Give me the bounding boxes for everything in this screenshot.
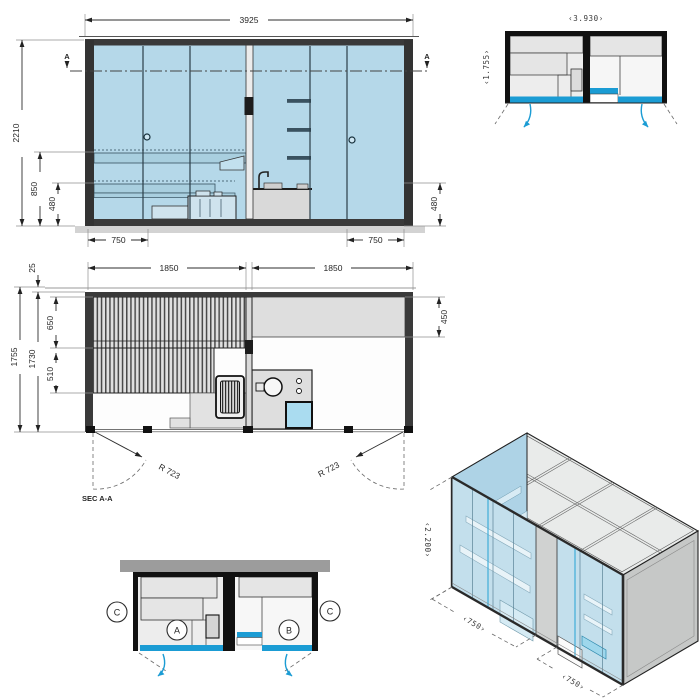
control-knob	[297, 379, 302, 384]
small-plan-depth-label: ‹1.755›	[482, 49, 491, 85]
drawing-svg: A A 3925 2210 850	[0, 0, 700, 700]
room-marker-b: B	[279, 620, 299, 640]
room-marker-a: A	[167, 620, 187, 640]
svg-text:450: 450	[439, 310, 449, 324]
svg-text:510: 510	[45, 367, 55, 381]
iso-partition	[536, 525, 557, 647]
door-handle-icon	[349, 137, 355, 143]
section-marker-c-right: C	[320, 601, 340, 621]
door-lock-block	[245, 97, 254, 115]
control-knob	[297, 389, 302, 394]
glass-front-right	[618, 97, 662, 103]
svg-text:2210: 2210	[11, 123, 21, 142]
dimension-depth-1755: 1755	[9, 287, 85, 432]
section-door-swing-a	[139, 653, 166, 676]
svg-text:1850: 1850	[160, 263, 179, 273]
dimension-bay-right-1850: 1850	[252, 262, 413, 290]
svg-text:750: 750	[111, 235, 125, 245]
section-door-swing-b	[285, 653, 311, 676]
door-swing-right	[641, 104, 677, 127]
svg-text:1850: 1850	[324, 263, 343, 273]
door-swing-left	[495, 104, 531, 127]
svg-text:1730: 1730	[27, 349, 37, 368]
shower-step	[590, 88, 618, 94]
svg-text:‹750›: ‹750›	[560, 672, 587, 693]
svg-text:25: 25	[27, 263, 37, 273]
svg-text:‹2.200›: ‹2.200›	[423, 522, 432, 558]
bench-step	[152, 206, 188, 219]
section-marker-left: A	[64, 52, 70, 68]
svg-text:750: 750	[368, 235, 382, 245]
plan-partition	[245, 297, 253, 429]
section-plan-view: A B C C	[107, 560, 340, 676]
dimension-overhang-25: 25	[27, 263, 38, 287]
sink-basin	[264, 378, 282, 396]
svg-text:B: B	[286, 626, 292, 636]
dimension-bench-850: 850	[29, 152, 94, 226]
dimension-width-3925: 3925	[85, 14, 413, 36]
svg-text:A: A	[174, 626, 180, 636]
glass-front-b	[262, 645, 312, 651]
section-marker-right: A	[424, 52, 430, 68]
svg-text:C: C	[114, 608, 121, 618]
dimension-bay-left-1850: 1850	[88, 262, 246, 290]
svg-text:‹750›: ‹750›	[461, 614, 488, 635]
rear-wall-band	[120, 560, 330, 572]
floor-strip	[75, 226, 425, 233]
svg-text:480: 480	[47, 197, 57, 211]
svg-text:3925: 3925	[240, 15, 259, 25]
front-elevation-view: A A 3925 2210 850	[11, 14, 446, 247]
glass-front-left	[510, 97, 583, 103]
door-handle-icon	[144, 134, 150, 140]
glass-front-a	[140, 645, 223, 651]
svg-text:R 723: R 723	[316, 459, 341, 479]
section-label: SEC A-A	[82, 494, 113, 503]
technical-drawing-sheet: A A 3925 2210 850	[0, 0, 700, 700]
shower-step-b	[237, 632, 262, 638]
svg-text:850: 850	[29, 182, 39, 196]
sauna-heater-plan	[216, 376, 244, 418]
faucet-plan	[256, 383, 264, 391]
svg-text:480: 480	[429, 197, 439, 211]
svg-text:R 723: R 723	[157, 462, 182, 482]
svg-text:1755: 1755	[9, 347, 19, 366]
isometric-view: ‹2.200› ‹750› ‹750›	[423, 433, 698, 697]
svg-text:650: 650	[45, 316, 55, 330]
shower-tray	[286, 402, 312, 428]
small-plan-view: ‹3.930› ‹1.755›	[482, 14, 677, 127]
floor-plan-view: R 723 R 723 SEC A-A 1850 1850 25	[9, 262, 449, 503]
plan-door-swing-left: R 723	[93, 432, 182, 489]
iso-dimension-height: ‹2.200›	[423, 477, 452, 601]
small-plan-width-label: ‹3.930›	[568, 14, 604, 23]
section-marker-c-left: C	[107, 602, 127, 622]
svg-text:A: A	[64, 52, 70, 61]
svg-text:C: C	[327, 607, 334, 617]
plan-door-swing-right: R 723	[316, 432, 404, 489]
svg-text:A: A	[424, 52, 430, 61]
